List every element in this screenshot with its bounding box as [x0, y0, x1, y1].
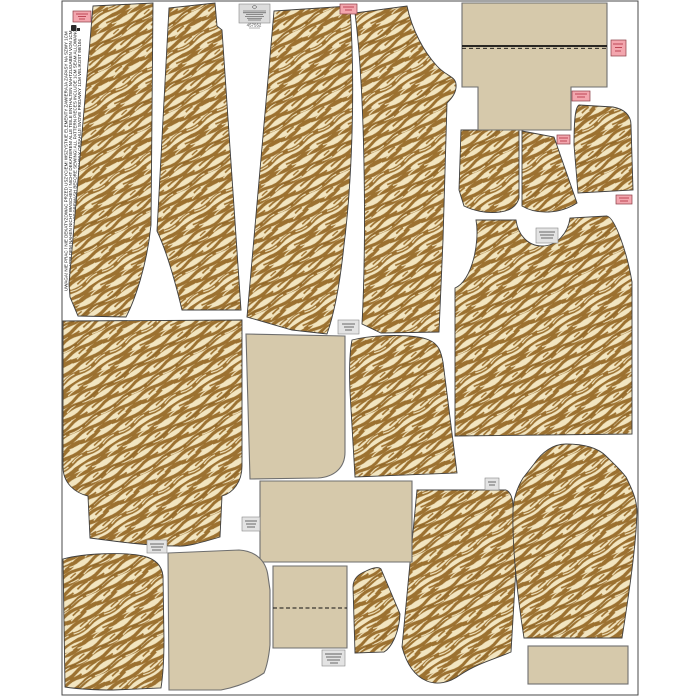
svg-text:457552: 457552 [247, 23, 262, 28]
